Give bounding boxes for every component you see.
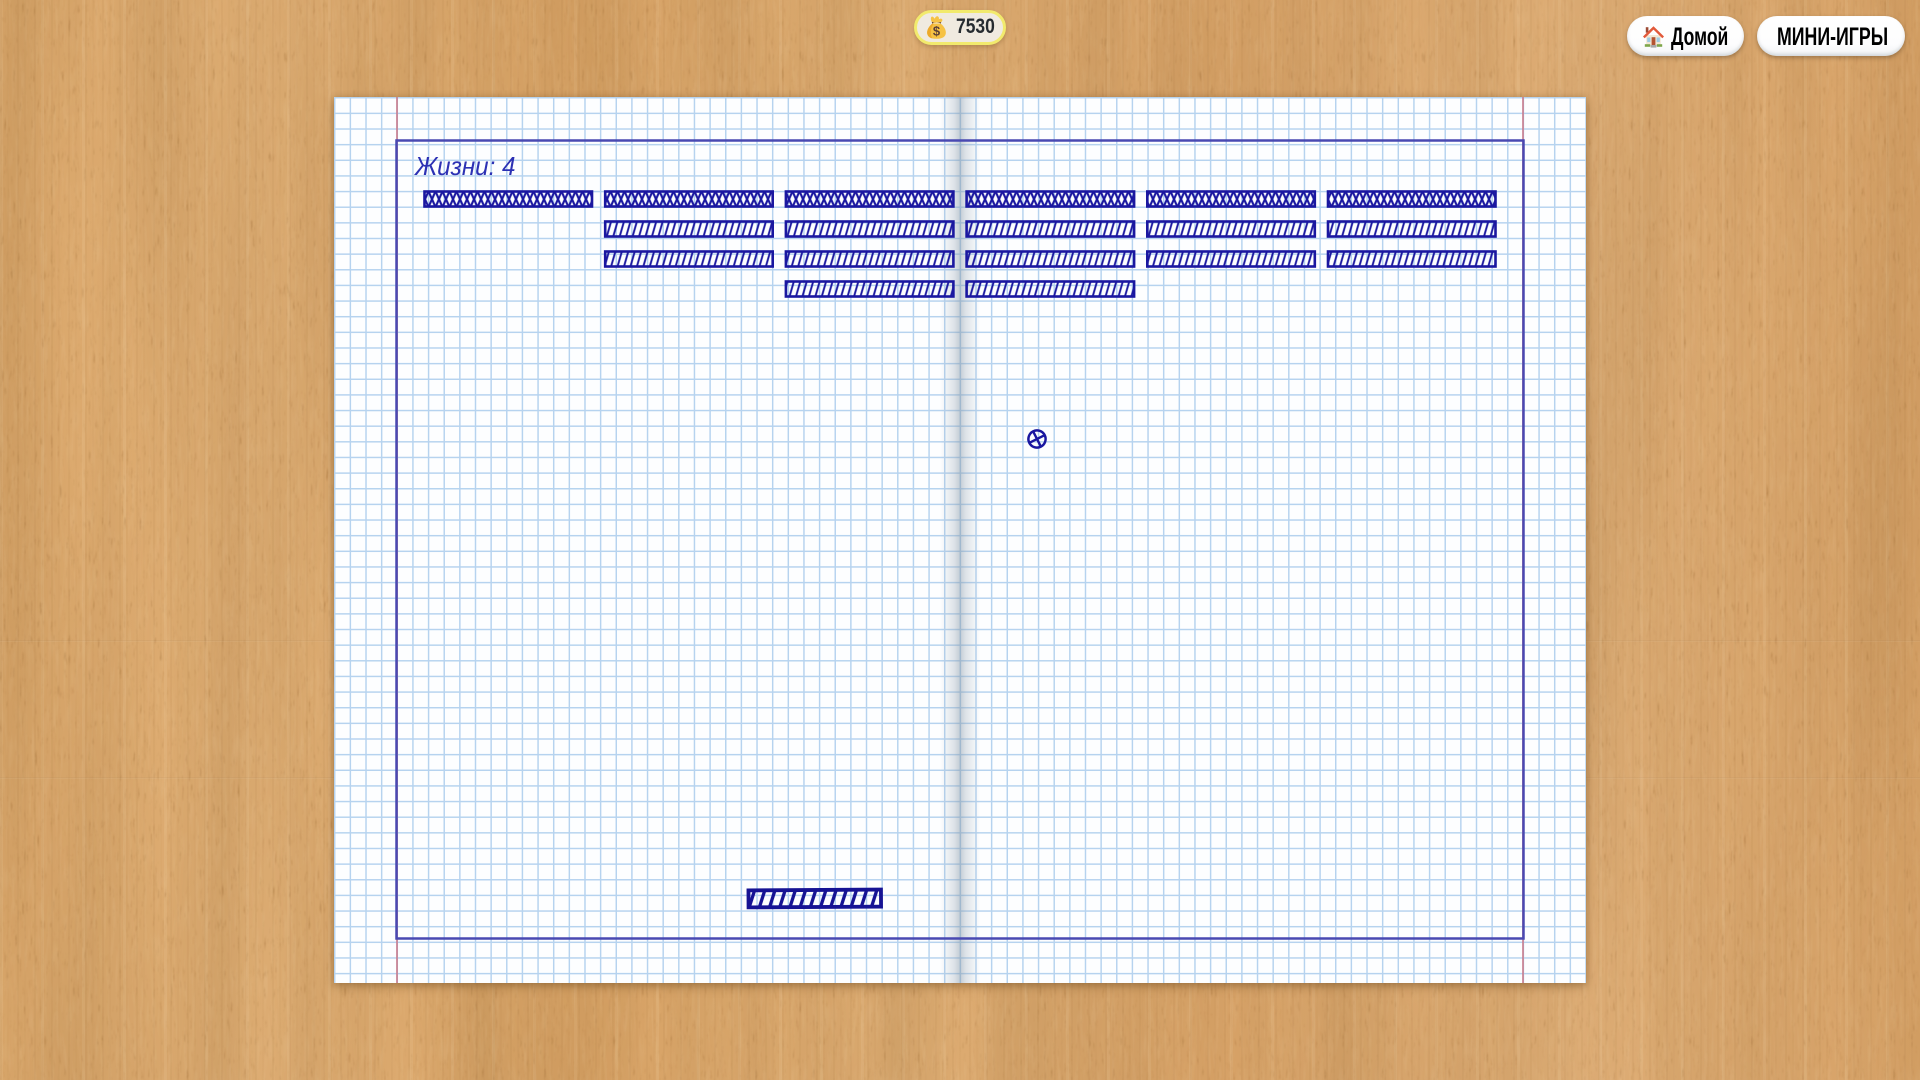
svg-text:$: $ — [933, 24, 941, 39]
